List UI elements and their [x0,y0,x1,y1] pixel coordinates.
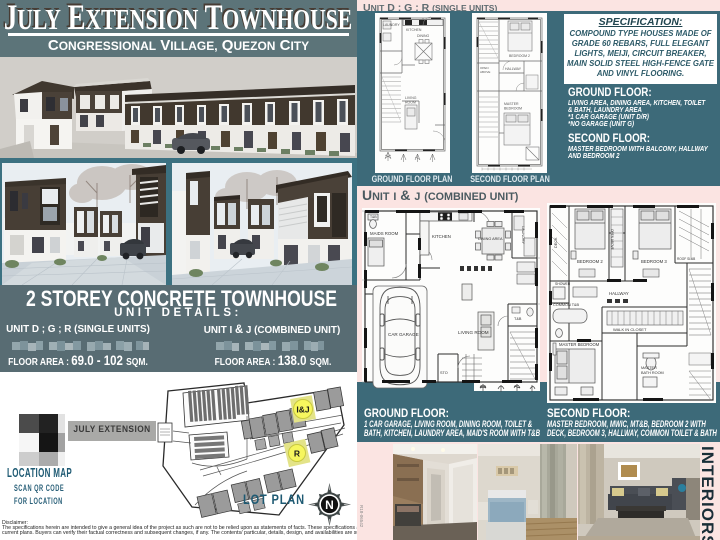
svg-text:N: N [325,498,334,512]
svg-text:DECK: DECK [554,237,558,248]
svg-text:MASTER BEDROOM: MASTER BEDROOM [559,342,600,347]
svg-text:MAIDS ROOM: MAIDS ROOM [370,231,399,236]
svg-text:LIVING: LIVING [405,96,417,100]
svg-text:T&B: T&B [514,317,522,321]
svg-text:ROOM: ROOM [405,101,416,105]
svg-text:MASTER: MASTER [504,102,519,106]
svg-text:KITCHEN: KITCHEN [432,234,451,239]
svg-text:MASTER: MASTER [641,366,657,370]
svg-text:SHOWER: SHOWER [555,282,571,286]
svg-text:LAUNDRY: LAUNDRY [521,226,525,245]
svg-text:R: R [294,449,300,459]
svg-text:STO: STO [440,371,448,375]
svg-text:T&B: T&B [370,215,377,219]
svg-text:BEDROOM 2: BEDROOM 2 [577,259,603,264]
svg-text:BEDROOM 2: BEDROOM 2 [509,54,530,58]
svg-text:BATH ROOM: BATH ROOM [641,371,664,375]
svg-text:DINING AREA: DINING AREA [478,237,503,241]
svg-text:CAR GARAGE: CAR GARAGE [388,332,419,337]
svg-text:BEDROOM: BEDROOM [504,107,522,111]
svg-text:WALK IN CLOSET: WALK IN CLOSET [613,327,647,332]
svg-text:LAUNDRY: LAUNDRY [383,23,400,27]
svg-text:LIVING ROOM: LIVING ROOM [458,330,489,335]
svg-text:OPEN ABOVE: OPEN ABOVE [610,229,614,250]
svg-text:I&J: I&J [296,405,310,415]
svg-text:ABOVE: ABOVE [480,70,490,74]
svg-text:BEDROOM 3: BEDROOM 3 [641,259,667,264]
svg-text:HALLWAY: HALLWAY [609,291,629,296]
svg-text:HALLWAY: HALLWAY [505,67,522,71]
svg-text:DINING: DINING [417,34,430,38]
svg-text:COMMON T&B: COMMON T&B [553,303,580,307]
svg-text:KITCHEN: KITCHEN [406,28,422,32]
svg-text:ROOF SLAB: ROOF SLAB [677,257,695,261]
